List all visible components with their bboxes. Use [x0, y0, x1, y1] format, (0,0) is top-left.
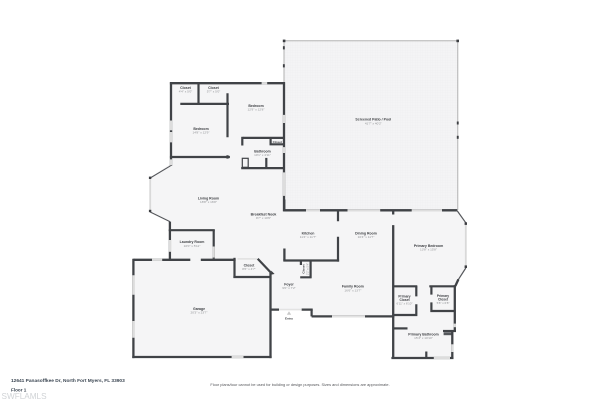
svg-text:Closet: Closet: [301, 264, 305, 273]
svg-text:18'8" x 16'8": 18'8" x 16'8": [200, 200, 217, 204]
svg-text:11'4" x 11'7": 11'4" x 11'7": [300, 235, 317, 239]
svg-text:SWFLAMLS: SWFLAMLS: [2, 392, 48, 400]
svg-text:16'6" x 13'7": 16'6" x 13'7": [344, 288, 361, 292]
svg-text:10'1" x 4'11": 10'1" x 4'11": [254, 153, 271, 157]
svg-text:12'9" x 12'8": 12'9" x 12'8": [248, 108, 265, 112]
svg-text:12641 Panasoffkee Dr, North Fo: 12641 Panasoffkee Dr, North Fort Myers, …: [11, 378, 125, 384]
svg-text:14'8" x 12'9": 14'8" x 12'9": [193, 130, 210, 134]
svg-text:Entry: Entry: [285, 316, 293, 320]
svg-text:2'2" x 5'4": 2'2" x 5'4": [306, 263, 310, 275]
svg-text:4'4" x 5'0": 4'4" x 5'0": [179, 89, 193, 93]
svg-text:5'8" x 6'8": 5'8" x 6'8": [437, 301, 450, 305]
svg-text:Floor plans/tour cannot be use: Floor plans/tour cannot be used for buil…: [210, 382, 389, 387]
svg-text:Closet: Closet: [273, 140, 282, 144]
svg-text:15'3" x 10'10": 15'3" x 10'10": [414, 336, 433, 340]
svg-text:5'7" x 5'0": 5'7" x 5'0": [207, 89, 221, 93]
svg-text:8'6" x 4'7": 8'6" x 4'7": [242, 267, 256, 271]
svg-text:41'7" x 40'2": 41'7" x 40'2": [365, 122, 382, 126]
svg-text:10'4" x 11'7": 10'4" x 11'7": [358, 235, 375, 239]
svg-text:10'0" x 5'11": 10'0" x 5'11": [184, 244, 201, 248]
svg-text:9'0" x 7'2": 9'0" x 7'2": [282, 286, 296, 290]
svg-text:9'7" x 10'6": 9'7" x 10'6": [256, 216, 271, 220]
svg-text:Screened Patio / Pool: Screened Patio / Pool: [355, 118, 391, 122]
svg-text:20'3" x 23'7": 20'3" x 23'7": [191, 311, 208, 315]
svg-text:13'8" x 15'8": 13'8" x 15'8": [420, 248, 437, 252]
svg-text:6'11" x 6'10": 6'11" x 6'10": [397, 301, 413, 305]
